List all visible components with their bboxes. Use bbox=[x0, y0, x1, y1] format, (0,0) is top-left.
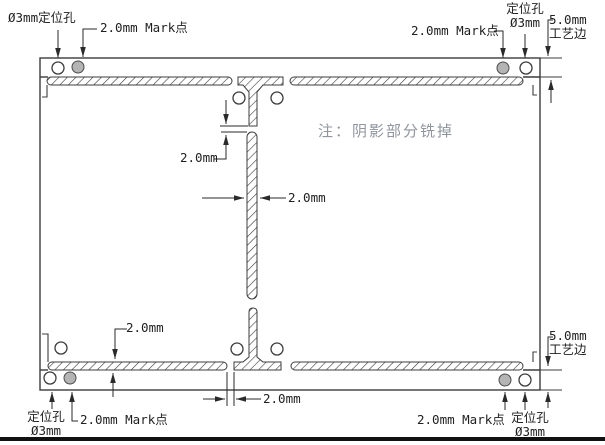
label-line: 定位孔 bbox=[18, 410, 74, 424]
positioning-hole bbox=[519, 374, 531, 386]
label-line: 定位孔 bbox=[500, 2, 550, 16]
label-line: Ø3mm bbox=[18, 424, 74, 438]
label-mark-point-top-right: 2.0mm Mark点 bbox=[411, 24, 499, 38]
label-mark-point-bottom-right: 2.0mm Mark点 bbox=[417, 413, 505, 427]
milling-note: 注：阴影部分铣掉 bbox=[318, 120, 454, 141]
label-process-edge-bottom-right: 5.0mm 工艺边 bbox=[549, 329, 605, 357]
board-hole bbox=[271, 343, 283, 355]
board-hole bbox=[271, 92, 283, 104]
label-mark-point-top-left: 2.0mm Mark点 bbox=[100, 21, 188, 35]
top-left-slot bbox=[47, 77, 232, 85]
center-vertical-slot bbox=[247, 132, 257, 299]
label-positioning-hole-top-right: 定位孔 Ø3mm bbox=[500, 2, 550, 30]
top-right-slot bbox=[290, 77, 523, 85]
panel-outline bbox=[40, 58, 562, 390]
label-positioning-hole-bottom-right: 定位孔 Ø3mm bbox=[504, 411, 556, 439]
positioning-holes bbox=[44, 62, 532, 386]
board-hole bbox=[231, 343, 243, 355]
label-process-edge-top-right: 5.0mm 工艺边 bbox=[549, 13, 605, 41]
label-positioning-hole-top-left: Ø3mm定位孔 bbox=[8, 11, 76, 25]
label-line: Ø3mm bbox=[500, 16, 550, 30]
label-line: 工艺边 bbox=[549, 343, 605, 357]
label-positioning-hole-bottom-left: 定位孔 Ø3mm bbox=[18, 410, 74, 438]
label-mark-point-bottom-left: 2.0mm Mark点 bbox=[80, 413, 168, 427]
board-hole bbox=[233, 92, 245, 104]
dimension-center-slot-width: 2.0mm bbox=[288, 191, 326, 205]
label-line: 5.0mm bbox=[549, 329, 605, 343]
dimension-bottom-slot-thickness: 2.0mm bbox=[126, 321, 164, 335]
mark-point-dot bbox=[64, 372, 76, 384]
positioning-hole bbox=[520, 62, 532, 74]
mark-point-dot bbox=[497, 62, 509, 74]
drawing-canvas bbox=[0, 0, 605, 445]
dimension-bottom-tab-gap: 2.0mm bbox=[263, 392, 301, 406]
dimension-top-tab-gap: 2.0mm bbox=[180, 151, 218, 165]
label-line: 5.0mm bbox=[549, 13, 605, 27]
label-line: 工艺边 bbox=[549, 27, 605, 41]
mark-point-dot bbox=[499, 374, 511, 386]
bottom-center-t-slot bbox=[234, 308, 281, 370]
mark-points bbox=[64, 61, 511, 386]
label-line: Ø3mm bbox=[504, 425, 556, 439]
mark-point-dot bbox=[72, 61, 84, 73]
positioning-hole bbox=[44, 372, 56, 384]
label-line: 定位孔 bbox=[504, 411, 556, 425]
bottom-left-slot bbox=[48, 362, 227, 370]
leader-mark-tl bbox=[83, 29, 97, 57]
board-hole bbox=[55, 342, 67, 354]
pcb-panel-drawing: Ø3mm定位孔 2.0mm Mark点 2.0mm Mark点 定位孔 Ø3mm… bbox=[0, 0, 605, 445]
positioning-hole bbox=[52, 62, 64, 74]
bottom-right-slot bbox=[291, 362, 523, 370]
